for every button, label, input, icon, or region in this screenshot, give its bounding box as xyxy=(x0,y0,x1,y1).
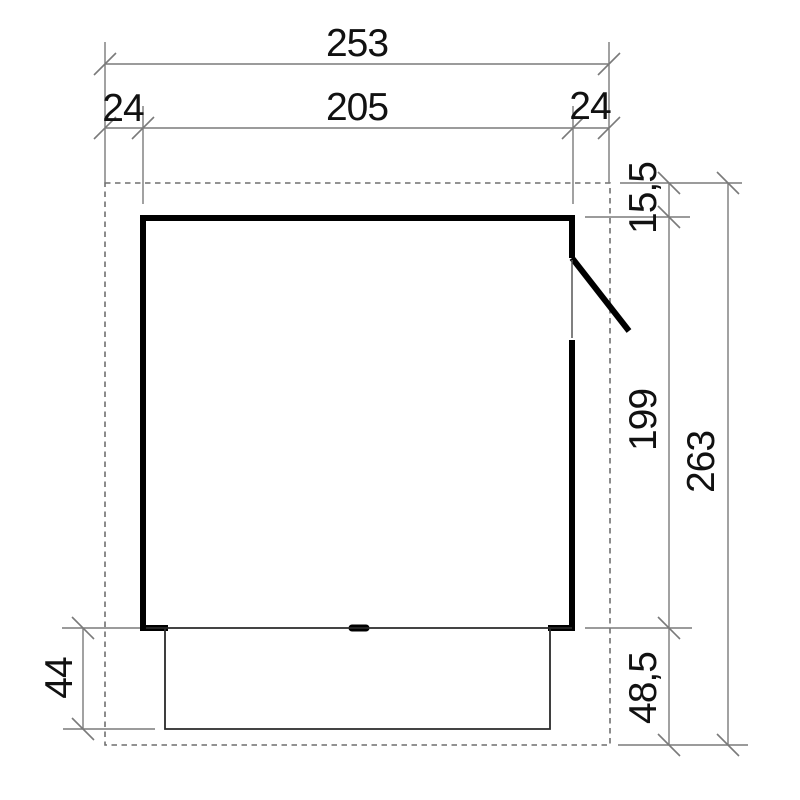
platform-outline xyxy=(165,628,550,729)
floor-plan-canvas: 253 24 205 24 15,5 199 263 48,5 44 xyxy=(0,0,800,800)
dim-label-platform-depth-left: 44 xyxy=(38,657,81,699)
wall-right-lower xyxy=(548,340,572,628)
dim-label-door-side-offset: 15,5 xyxy=(622,162,665,234)
wall-left-top-doorjamb xyxy=(143,218,572,628)
dim-label-left-overhang: 24 xyxy=(102,87,144,130)
dim-label-right-overhang: 24 xyxy=(569,85,611,128)
door-leaf xyxy=(572,258,629,331)
dim-label-inner-depth: 199 xyxy=(622,389,665,451)
footprint-dashed-outline xyxy=(105,183,610,745)
dim-label-total-width: 253 xyxy=(326,22,388,65)
floor-plan-drawing: 253 24 205 24 15,5 199 263 48,5 44 xyxy=(0,0,800,800)
dim-label-inner-width: 205 xyxy=(326,86,388,129)
dim-label-total-depth: 263 xyxy=(680,431,723,493)
building-walls xyxy=(143,218,629,628)
thin-structure-lines xyxy=(146,628,572,729)
dim-label-platform-depth-right: 48,5 xyxy=(622,652,665,724)
